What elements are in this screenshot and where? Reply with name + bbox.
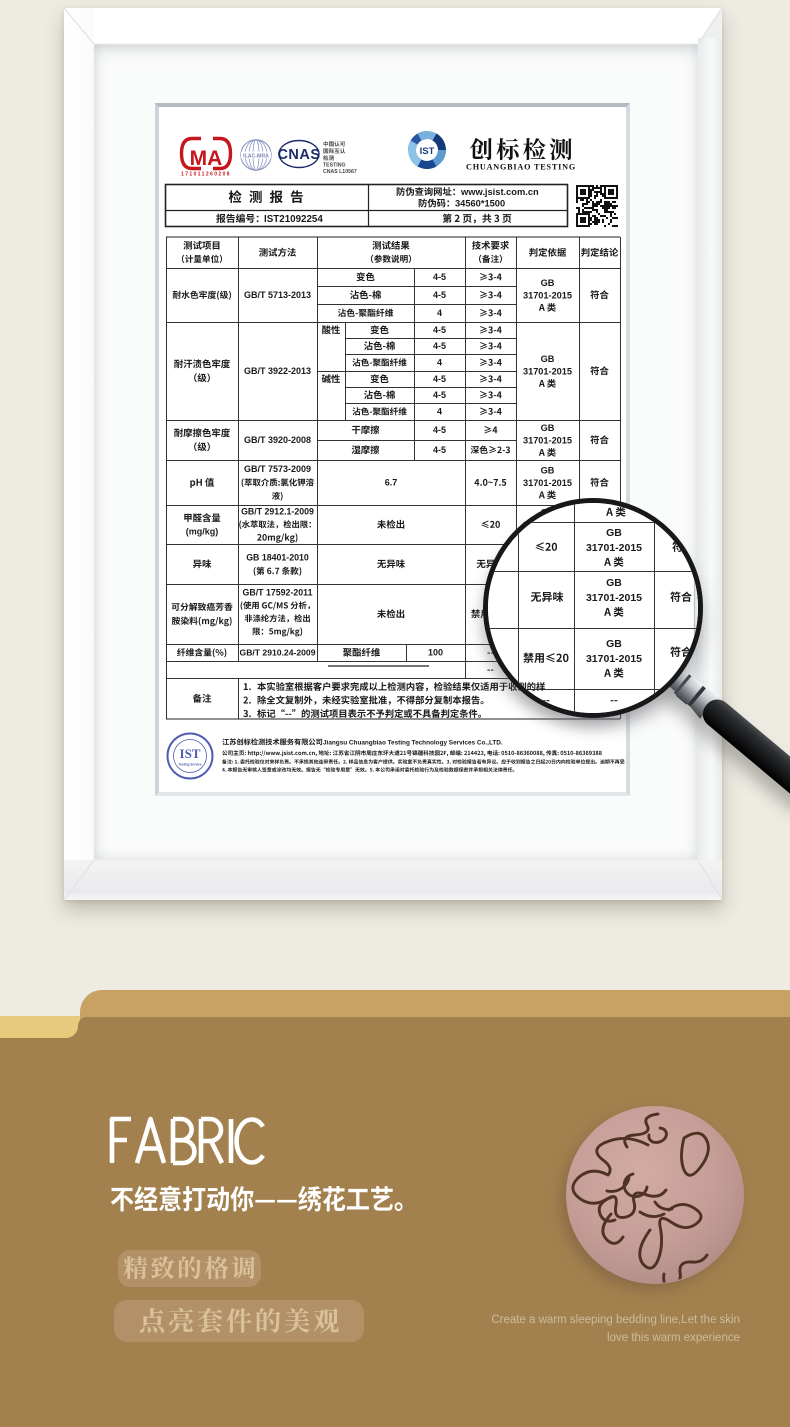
svg-text:GB: GB: [541, 278, 555, 288]
svg-text:GB: GB: [541, 423, 555, 433]
svg-text:Create a warm sleeping bedding: Create a warm sleeping bedding line,Let …: [491, 1314, 740, 1326]
svg-text:6.7: 6.7: [385, 478, 398, 488]
svg-text:4-5: 4-5: [433, 374, 446, 384]
svg-text:31701-2015: 31701-2015: [523, 478, 572, 488]
svg-text:Testing Service: Testing Service: [178, 763, 202, 767]
svg-text:31701-2015: 31701-2015: [523, 435, 572, 445]
svg-text:GB/T 3920-2008: GB/T 3920-2008: [244, 435, 311, 445]
svg-text:TESTING: TESTING: [323, 163, 345, 169]
svg-text:31701-2015: 31701-2015: [586, 653, 642, 665]
svg-text:4-5: 4-5: [433, 272, 446, 282]
svg-text:4-5: 4-5: [433, 341, 446, 351]
svg-text:GB/T 2912.1-2009: GB/T 2912.1-2009: [241, 507, 314, 517]
svg-text:171011260208: 171011260208: [181, 172, 231, 178]
svg-text:IST: IST: [180, 746, 201, 761]
svg-text:GB/T 17592-2011: GB/T 17592-2011: [243, 588, 313, 598]
svg-text:GB: GB: [527, 506, 543, 518]
svg-text:GB: GB: [606, 638, 622, 650]
svg-text:(mg/kg): (mg/kg): [186, 527, 219, 537]
svg-text:GB: GB: [606, 577, 622, 589]
svg-text:CNAS L10567: CNAS L10567: [323, 169, 357, 175]
svg-text:4: 4: [437, 358, 442, 368]
svg-text:CNAS: CNAS: [277, 147, 320, 163]
svg-text:GB: GB: [541, 354, 555, 364]
svg-text:GB/T 3922-2013: GB/T 3922-2013: [244, 366, 311, 376]
svg-text:31701-2015: 31701-2015: [523, 290, 572, 300]
svg-text:love this warm experience: love this warm experience: [607, 1332, 740, 1344]
svg-text:4: 4: [437, 407, 442, 417]
svg-text:GB 18401-2010: GB 18401-2010: [246, 553, 309, 563]
svg-text:4: 4: [437, 308, 442, 318]
svg-text:www.jsist.com.cn: www.jsist.com.cn: [460, 187, 539, 197]
svg-text:MA: MA: [190, 147, 223, 170]
svg-text:ILAC-MRA: ILAC-MRA: [243, 154, 269, 160]
svg-text:4-5: 4-5: [433, 425, 446, 435]
svg-text:GB: GB: [541, 465, 555, 475]
svg-text:4-5: 4-5: [433, 290, 446, 300]
svg-text:4-5: 4-5: [433, 390, 446, 400]
svg-text:GB/T 2910.24-2009: GB/T 2910.24-2009: [240, 648, 316, 658]
svg-text:34560*1500: 34560*1500: [455, 199, 505, 209]
svg-text:IST: IST: [420, 146, 435, 157]
svg-text:4-5: 4-5: [433, 325, 446, 335]
svg-text:31701-2015: 31701-2015: [586, 542, 642, 554]
svg-text:GB/T 5713-2013: GB/T 5713-2013: [244, 290, 311, 300]
svg-text:100: 100: [428, 648, 443, 658]
svg-text:GB/T 7573-2009: GB/T 7573-2009: [244, 464, 311, 474]
svg-text:IST21092254: IST21092254: [264, 214, 323, 225]
svg-text:31701-2015: 31701-2015: [523, 366, 572, 376]
svg-text:4-5: 4-5: [433, 445, 446, 455]
svg-text:CHUANGBIAO TESTING: CHUANGBIAO TESTING: [466, 163, 576, 172]
svg-text:31701-2015: 31701-2015: [586, 592, 642, 604]
svg-text:Jiangsu Chuangbiao Testing Tec: Jiangsu Chuangbiao Testing Technology Se…: [323, 740, 503, 747]
svg-text:GB: GB: [606, 527, 622, 539]
